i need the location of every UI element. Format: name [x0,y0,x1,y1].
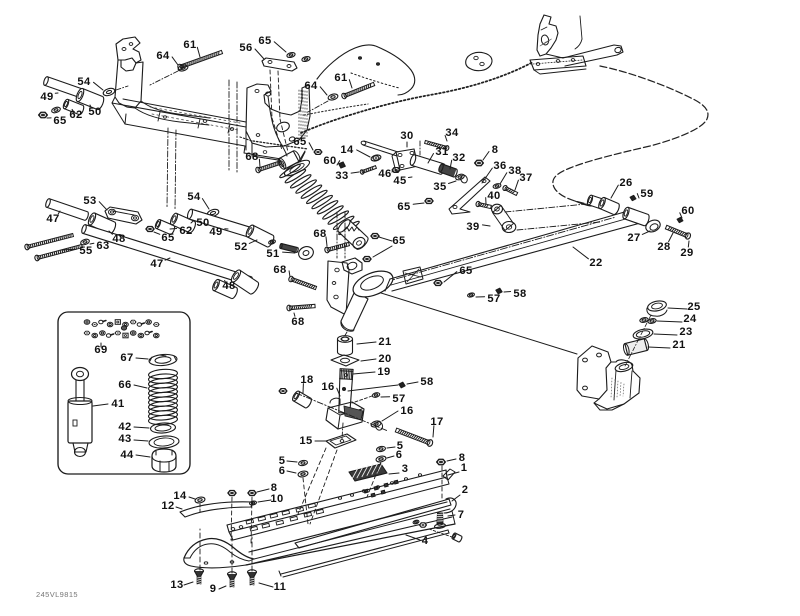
svg-text:32: 32 [452,152,465,164]
svg-text:65: 65 [258,35,271,47]
svg-text:16: 16 [321,381,334,393]
svg-text:10: 10 [270,493,283,505]
svg-text:60: 60 [323,155,336,167]
svg-text:62: 62 [179,225,192,237]
svg-text:13: 13 [170,579,183,591]
svg-text:21: 21 [378,336,391,348]
svg-text:65: 65 [459,265,472,277]
svg-text:53: 53 [83,195,96,207]
svg-text:24: 24 [683,313,697,325]
svg-text:47: 47 [150,258,163,270]
svg-text:11: 11 [274,581,287,593]
svg-text:63: 63 [96,240,109,252]
svg-text:50: 50 [88,106,101,118]
svg-text:60: 60 [681,205,694,217]
svg-text:8: 8 [459,452,466,464]
svg-text:14: 14 [340,144,354,156]
svg-text:18: 18 [300,374,313,386]
svg-text:54: 54 [77,76,91,88]
svg-text:64: 64 [156,50,170,62]
svg-text:62: 62 [69,109,82,121]
svg-text:55: 55 [79,245,92,257]
svg-text:68: 68 [273,264,286,276]
svg-text:17: 17 [430,416,443,428]
svg-text:35: 35 [433,181,446,193]
svg-text:25: 25 [687,301,700,313]
svg-text:26: 26 [619,177,632,189]
svg-text:57: 57 [392,393,405,405]
svg-text:15: 15 [299,435,312,447]
svg-text:29: 29 [680,247,693,259]
svg-text:4: 4 [422,535,429,547]
svg-text:49: 49 [209,226,222,238]
svg-text:39: 39 [466,221,479,233]
svg-text:16: 16 [400,405,413,417]
svg-text:67: 67 [120,352,133,364]
svg-text:65: 65 [397,201,410,213]
svg-text:6: 6 [396,449,403,461]
svg-text:52: 52 [234,241,247,253]
svg-text:7: 7 [458,509,465,521]
svg-text:37: 37 [519,172,532,184]
svg-text:48: 48 [112,233,125,245]
svg-text:28: 28 [657,241,670,253]
svg-text:44: 44 [120,449,134,461]
svg-text:20: 20 [378,353,391,365]
svg-text:8: 8 [492,144,499,156]
svg-text:58: 58 [420,376,433,388]
svg-text:47: 47 [46,213,59,225]
svg-text:9: 9 [210,583,217,595]
svg-text:54: 54 [187,191,201,203]
svg-text:22: 22 [589,257,602,269]
svg-text:66: 66 [118,379,131,391]
svg-text:30: 30 [400,130,413,142]
svg-text:14: 14 [173,490,187,502]
svg-text:23: 23 [679,326,692,338]
svg-text:65: 65 [392,235,405,247]
svg-text:36: 36 [493,160,506,172]
svg-text:45: 45 [393,175,406,187]
svg-text:3: 3 [402,463,409,475]
svg-text:61: 61 [334,72,347,84]
svg-text:56: 56 [239,42,252,54]
svg-text:245VL9815: 245VL9815 [36,590,78,599]
svg-text:68: 68 [291,316,304,328]
svg-text:59: 59 [640,188,653,200]
svg-text:65: 65 [161,232,174,244]
svg-text:46: 46 [378,168,391,180]
svg-text:31: 31 [435,146,448,158]
svg-text:49: 49 [40,91,53,103]
svg-text:42: 42 [118,421,131,433]
svg-text:2: 2 [462,484,469,496]
svg-text:34: 34 [445,127,459,139]
svg-text:64: 64 [304,80,318,92]
svg-text:57: 57 [487,293,500,305]
svg-text:41: 41 [111,398,124,410]
svg-text:51: 51 [266,248,279,260]
svg-text:58: 58 [513,288,526,300]
svg-text:65: 65 [53,115,66,127]
svg-text:50: 50 [196,217,209,229]
svg-text:6: 6 [279,465,286,477]
svg-text:21: 21 [672,339,685,351]
svg-text:19: 19 [377,366,390,378]
svg-text:33: 33 [335,170,348,182]
svg-text:40: 40 [487,190,500,202]
svg-text:61: 61 [183,39,196,51]
svg-text:65: 65 [293,136,306,148]
svg-text:68: 68 [245,151,258,163]
svg-text:48: 48 [222,280,235,292]
svg-text:43: 43 [118,433,131,445]
svg-text:68: 68 [313,228,326,240]
svg-text:27: 27 [627,232,640,244]
